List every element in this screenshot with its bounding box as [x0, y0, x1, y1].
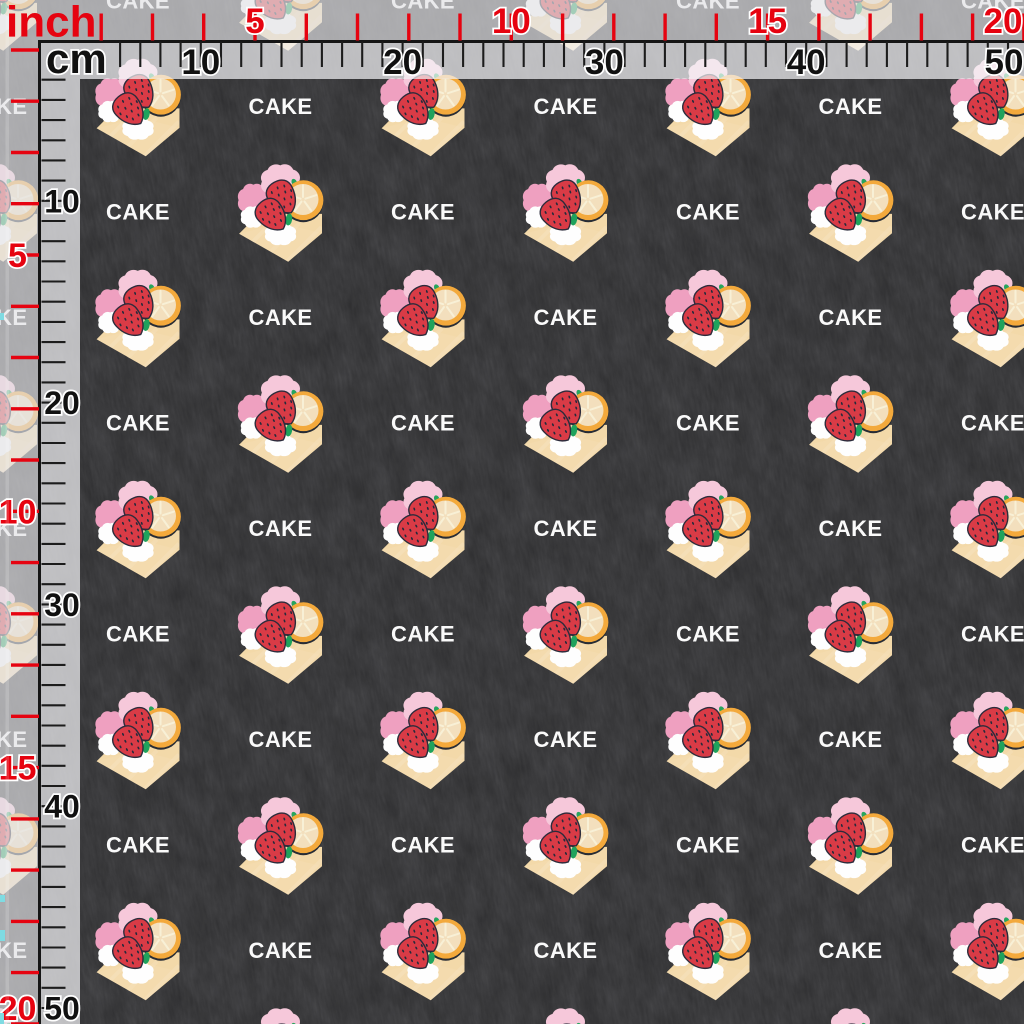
svg-text:CAKE: CAKE: [106, 200, 170, 225]
svg-text:CAKE: CAKE: [249, 938, 313, 963]
svg-text:CAKE: CAKE: [106, 833, 170, 858]
svg-text:10: 10: [0, 493, 36, 531]
svg-text:10: 10: [181, 43, 220, 82]
svg-text:inch: inch: [6, 0, 96, 47]
svg-text:15: 15: [0, 750, 36, 788]
svg-text:30: 30: [44, 587, 80, 623]
svg-text:CAKE: CAKE: [676, 833, 740, 858]
svg-text:CAKE: CAKE: [534, 727, 598, 752]
svg-text:50: 50: [44, 991, 80, 1024]
svg-text:10: 10: [44, 183, 80, 219]
svg-text:CAKE: CAKE: [819, 516, 883, 541]
svg-text:CAKE: CAKE: [249, 305, 313, 330]
svg-text:5: 5: [8, 237, 27, 275]
svg-text:CAKE: CAKE: [961, 622, 1024, 647]
svg-text:CAKE: CAKE: [819, 938, 883, 963]
svg-text:50: 50: [985, 43, 1024, 82]
svg-text:CAKE: CAKE: [534, 516, 598, 541]
svg-text:CAKE: CAKE: [534, 305, 598, 330]
svg-text:CAKE: CAKE: [534, 94, 598, 119]
svg-text:20: 20: [383, 43, 422, 82]
svg-text:CAKE: CAKE: [961, 411, 1024, 436]
svg-text:15: 15: [748, 2, 787, 41]
svg-text:CAKE: CAKE: [676, 411, 740, 436]
svg-text:CAKE: CAKE: [819, 727, 883, 752]
svg-text:CAKE: CAKE: [534, 938, 598, 963]
svg-text:30: 30: [585, 43, 624, 82]
svg-text:CAKE: CAKE: [676, 622, 740, 647]
svg-text:CAKE: CAKE: [391, 622, 455, 647]
svg-text:CAKE: CAKE: [391, 411, 455, 436]
svg-text:CAKE: CAKE: [249, 516, 313, 541]
svg-text:10: 10: [492, 2, 531, 41]
svg-text:40: 40: [787, 43, 826, 82]
svg-text:CAKE: CAKE: [676, 200, 740, 225]
svg-text:20: 20: [984, 2, 1023, 41]
svg-text:5: 5: [245, 2, 264, 41]
svg-text:CAKE: CAKE: [249, 94, 313, 119]
svg-text:CAKE: CAKE: [961, 833, 1024, 858]
svg-text:CAKE: CAKE: [249, 727, 313, 752]
svg-text:20: 20: [0, 990, 36, 1024]
svg-text:CAKE: CAKE: [391, 833, 455, 858]
svg-text:40: 40: [44, 789, 80, 825]
svg-text:CAKE: CAKE: [391, 200, 455, 225]
svg-text:CAKE: CAKE: [106, 622, 170, 647]
svg-text:CAKE: CAKE: [819, 94, 883, 119]
svg-text:CAKE: CAKE: [106, 411, 170, 436]
svg-text:20: 20: [44, 385, 80, 421]
svg-text:CAKE: CAKE: [819, 305, 883, 330]
svg-text:CAKE: CAKE: [961, 200, 1024, 225]
